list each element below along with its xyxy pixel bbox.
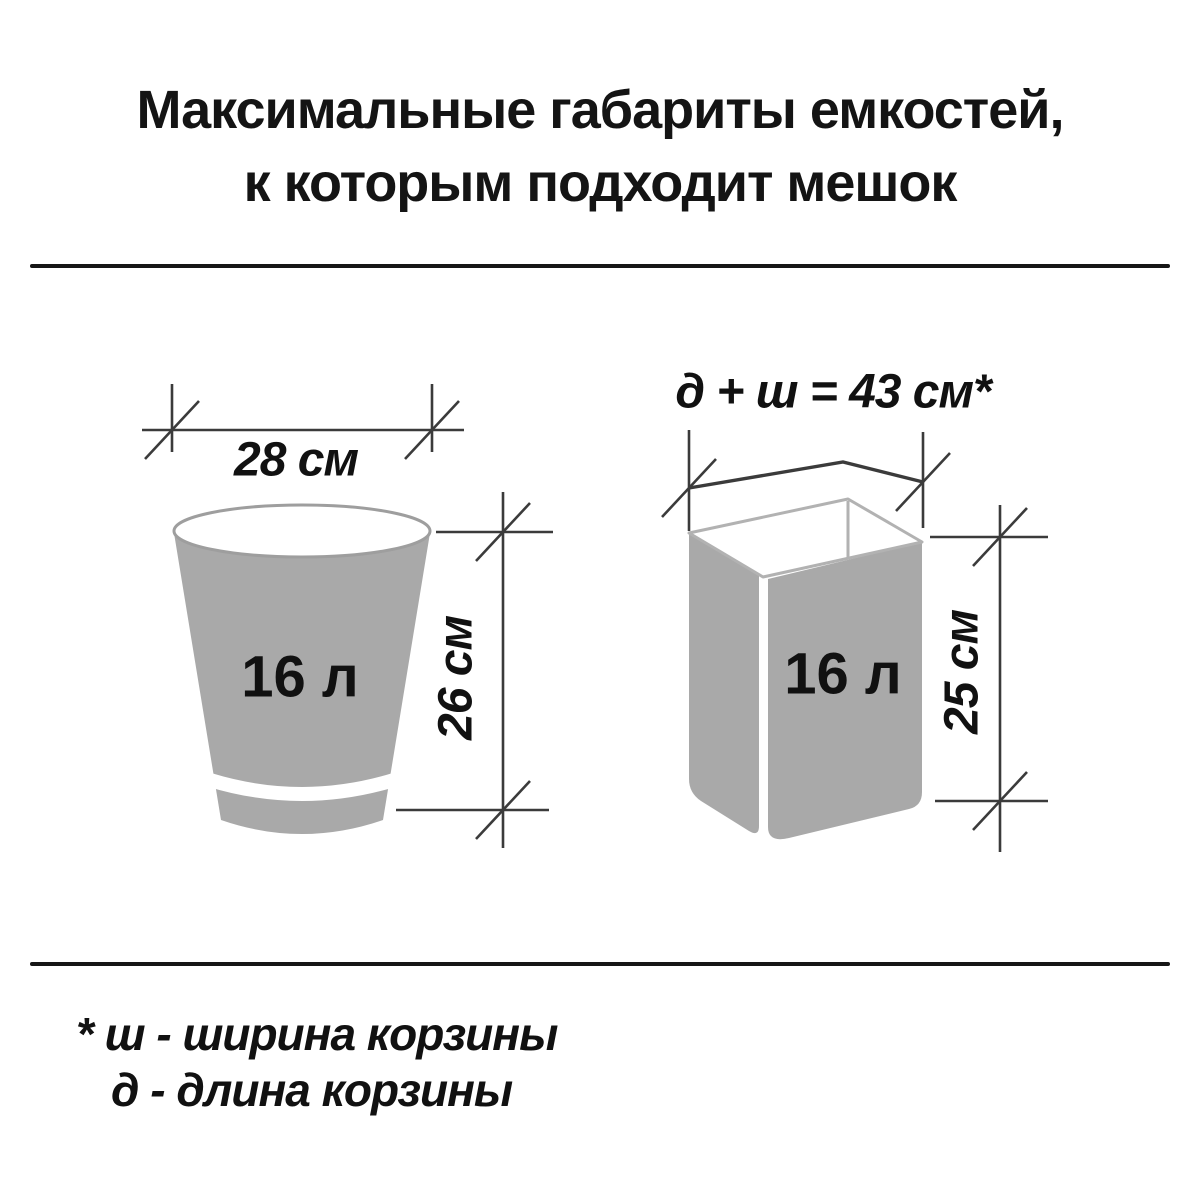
footnote-length: д - длина корзины: [111, 1064, 512, 1116]
left-volume-label: 16 л: [241, 644, 358, 711]
footnote-width: * ш - ширина корзины: [76, 1008, 557, 1060]
basket-left-face: [689, 533, 759, 833]
right-volume-label: 16 л: [784, 641, 901, 708]
right-height-label: 25 см: [935, 610, 990, 734]
left-height-label: 26 см: [429, 616, 484, 740]
left-width-label: 28 см: [234, 433, 358, 488]
right-formula-label: д + ш = 43 см*: [675, 365, 990, 420]
infographic-page: Максимальные габариты емкостей, к которы…: [0, 0, 1200, 1200]
dimension-line-bent: [689, 462, 923, 488]
bucket-rim: [174, 505, 430, 557]
